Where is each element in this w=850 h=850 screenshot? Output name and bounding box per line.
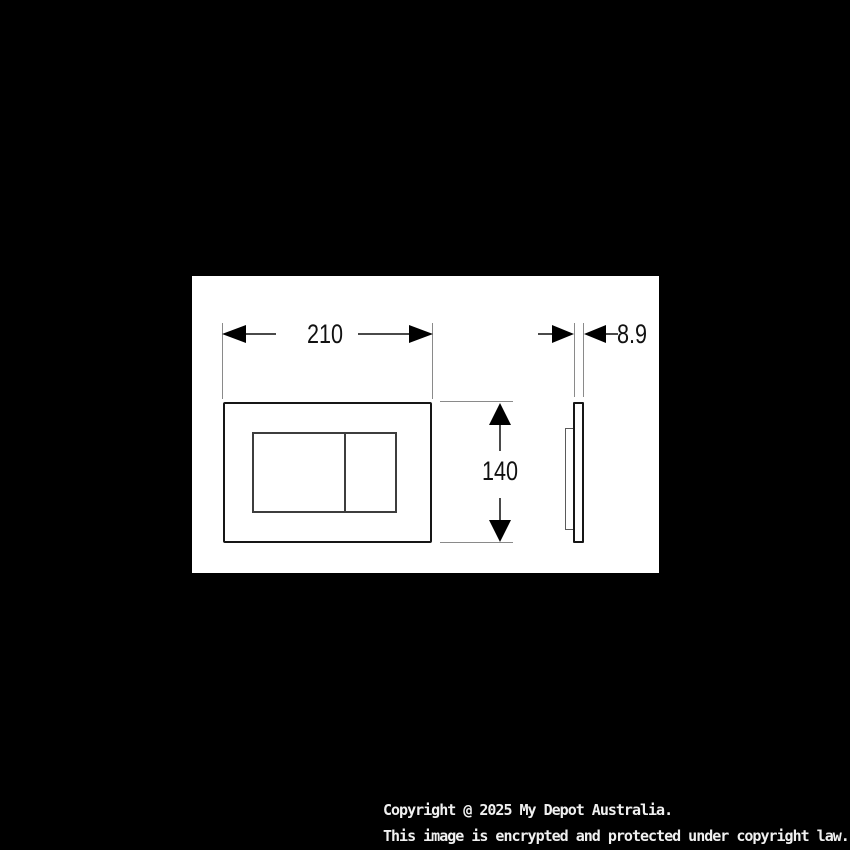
depth-dimension-label: 8.9: [617, 320, 647, 348]
flush-plate-side-view: [573, 402, 584, 543]
drawing-panel: 210 8.9 140: [192, 276, 659, 573]
width-dimension-line-right: [358, 333, 409, 335]
arrow-left-icon: [222, 325, 246, 343]
flush-buttons-outline: [252, 432, 397, 513]
height-dimension-line-bottom: [499, 498, 501, 520]
width-dimension-label: 210: [301, 320, 349, 348]
copyright-line-2: This image is encrypted and protected un…: [383, 823, 849, 849]
image-background: 210 8.9 140 Copyright @ 2025 My Depot Au…: [0, 0, 850, 850]
arrow-right-icon: [409, 325, 433, 343]
width-dimension-line-left: [246, 333, 276, 335]
arrow-down-icon: [489, 520, 511, 542]
arrow-right-icon: [552, 325, 574, 343]
height-dimension-label: 140: [476, 457, 524, 485]
arrow-up-icon: [489, 403, 511, 425]
flush-button-divider: [344, 434, 346, 511]
arrow-left-icon: [584, 325, 606, 343]
height-extension-line-bottom: [440, 542, 513, 543]
height-dimension-line-top: [499, 425, 501, 451]
copyright-line-1: Copyright @ 2025 My Depot Australia.: [383, 797, 849, 823]
height-extension-line-top: [440, 401, 513, 402]
depth-extension-line-left: [574, 323, 575, 397]
copyright-footer: Copyright @ 2025 My Depot Australia. Thi…: [383, 797, 849, 849]
